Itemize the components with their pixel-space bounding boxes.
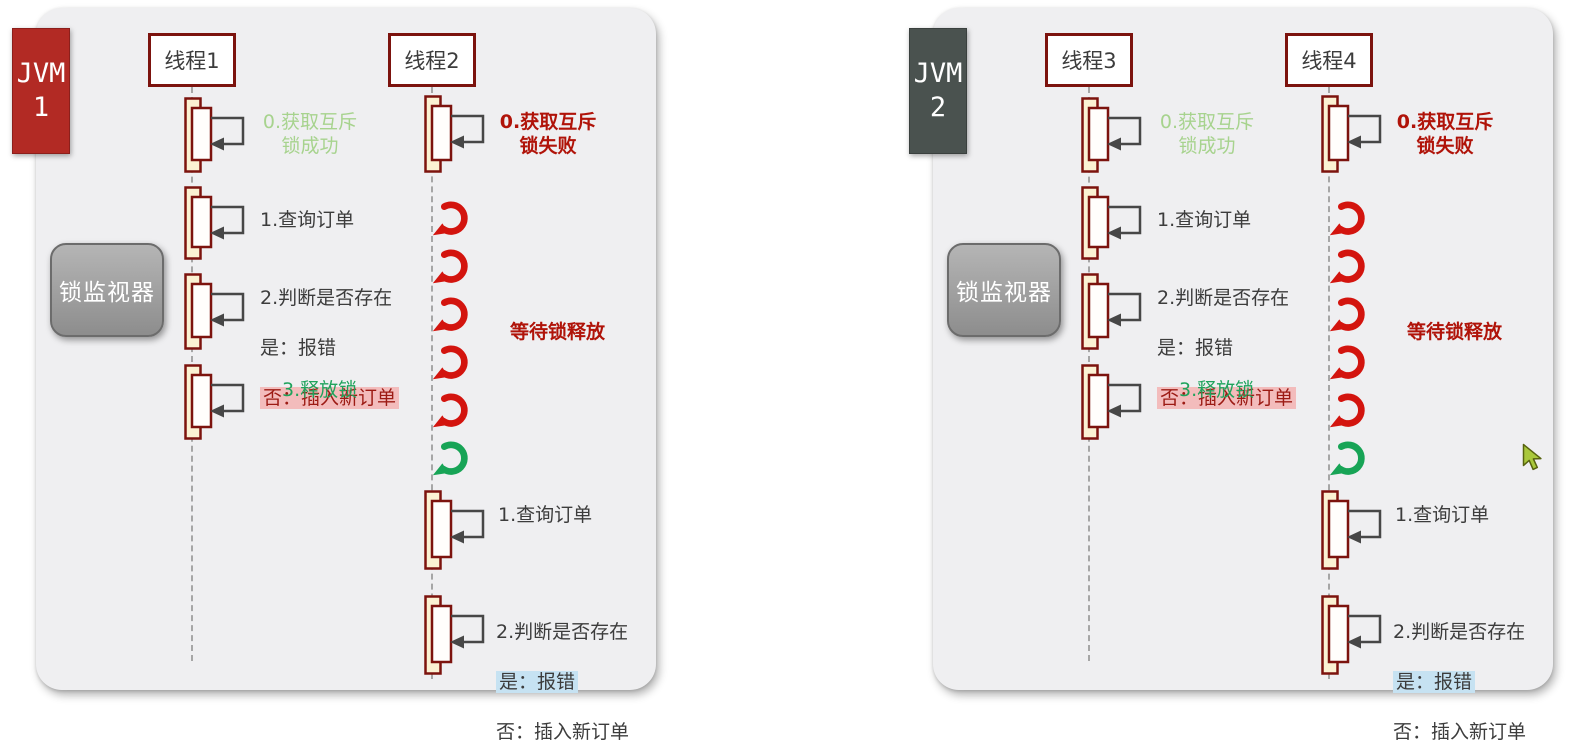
judge-yes-highlighted: 是：报错: [1393, 671, 1475, 693]
activation-bar: [424, 595, 494, 675]
retry-arrow-icon: [1325, 248, 1369, 288]
activation-bar-graphic: [184, 273, 254, 350]
activation-bar: [1321, 595, 1391, 675]
acquire-fail-label: 0.获取互斥 锁失败: [1389, 110, 1501, 158]
retry-arrow-icon: [428, 344, 472, 384]
thread1-box: 线程1: [148, 33, 236, 87]
jvm1-badge: JVM 1: [12, 28, 70, 154]
activation-bar-graphic: [424, 595, 494, 675]
activation-bar: [184, 273, 254, 350]
retry-arrow-icon: [1325, 344, 1369, 384]
activation-bar: [424, 95, 494, 173]
lock-monitor: 锁监视器: [947, 243, 1061, 337]
judge-yes: 是：报错: [1157, 337, 1233, 359]
activation-bar: [184, 186, 254, 260]
jvm1-panel: JVM 1 锁监视器 线程1 线程2 0.获取互斥 锁成功 1.查询订单 2.判…: [36, 8, 656, 690]
activation-bar-graphic: [1321, 95, 1391, 173]
retry-arrow-icon: [1325, 392, 1369, 432]
lock-monitor: 锁监视器: [50, 243, 164, 337]
activation-bar-graphic: [1081, 364, 1151, 440]
release-lock-label: 3.释放锁: [1179, 378, 1254, 403]
judge-exists-label: 2.判断是否存在 是：报错 否：插入新订单: [496, 595, 629, 745]
thread2-box: 线程2: [388, 33, 476, 87]
activation-bar: [424, 490, 494, 570]
release-lock-label: 3.释放锁: [282, 378, 357, 403]
acquire-success-label: 0.获取互斥 锁成功: [1151, 110, 1263, 158]
jvm2-panel: JVM 2 锁监视器 线程3 线程4 0.获取互斥 锁成功 1.查询订单 2.判…: [933, 8, 1553, 690]
activation-bar: [184, 364, 254, 440]
retry-arrow-icon: [1325, 296, 1369, 336]
activation-bar: [1081, 273, 1151, 350]
judge-no: 否：插入新订单: [1393, 721, 1526, 743]
judge-title: 2.判断是否存在: [496, 621, 628, 643]
wait-release-label: 等待锁释放: [510, 320, 605, 345]
jvm2-badge: JVM 2: [909, 28, 967, 154]
judge-yes-highlighted: 是：报错: [496, 671, 578, 693]
retry-arrow-icon: [428, 248, 472, 288]
judge-exists-label: 2.判断是否存在 是：报错 否：插入新订单: [1393, 595, 1526, 745]
activation-bar-graphic: [184, 97, 254, 173]
retry-arrow-icon: [428, 296, 472, 336]
activation-bar-graphic: [424, 95, 494, 173]
activation-bar-graphic: [1321, 595, 1391, 675]
activation-bar-graphic: [184, 186, 254, 260]
query-order-label: 1.查询订单: [1395, 503, 1489, 528]
judge-title: 2.判断是否存在: [1157, 287, 1289, 309]
retry-arrow-icon: [428, 440, 472, 480]
thread4-box: 线程4: [1285, 33, 1373, 87]
thread3-box: 线程3: [1045, 33, 1133, 87]
query-order-label: 1.查询订单: [1157, 208, 1251, 233]
retry-arrow-icon: [1325, 200, 1369, 240]
activation-bar: [1321, 95, 1391, 173]
activation-bar-graphic: [424, 490, 494, 570]
activation-bar: [1081, 186, 1151, 260]
retry-arrow-icon: [428, 392, 472, 432]
retry-arrow-icon: [428, 200, 472, 240]
retry-arrow-icon: [1325, 440, 1369, 480]
activation-bar: [184, 97, 254, 173]
activation-bar: [1321, 490, 1391, 570]
judge-title: 2.判断是否存在: [260, 287, 392, 309]
judge-yes: 是：报错: [260, 337, 336, 359]
wait-retry-arrows: [428, 200, 472, 480]
activation-bar: [1081, 364, 1151, 440]
wait-release-label: 等待锁释放: [1407, 320, 1502, 345]
query-order-label: 1.查询订单: [498, 503, 592, 528]
activation-bar: [1081, 97, 1151, 173]
activation-bar-graphic: [1081, 97, 1151, 173]
activation-bar-graphic: [184, 364, 254, 440]
mouse-cursor-icon: [1522, 443, 1543, 477]
judge-no: 否：插入新订单: [496, 721, 629, 743]
acquire-success-label: 0.获取互斥 锁成功: [254, 110, 366, 158]
activation-bar-graphic: [1081, 273, 1151, 350]
acquire-fail-label: 0.获取互斥 锁失败: [492, 110, 604, 158]
query-order-label: 1.查询订单: [260, 208, 354, 233]
activation-bar-graphic: [1321, 490, 1391, 570]
wait-retry-arrows: [1325, 200, 1369, 480]
activation-bar-graphic: [1081, 186, 1151, 260]
judge-title: 2.判断是否存在: [1393, 621, 1525, 643]
